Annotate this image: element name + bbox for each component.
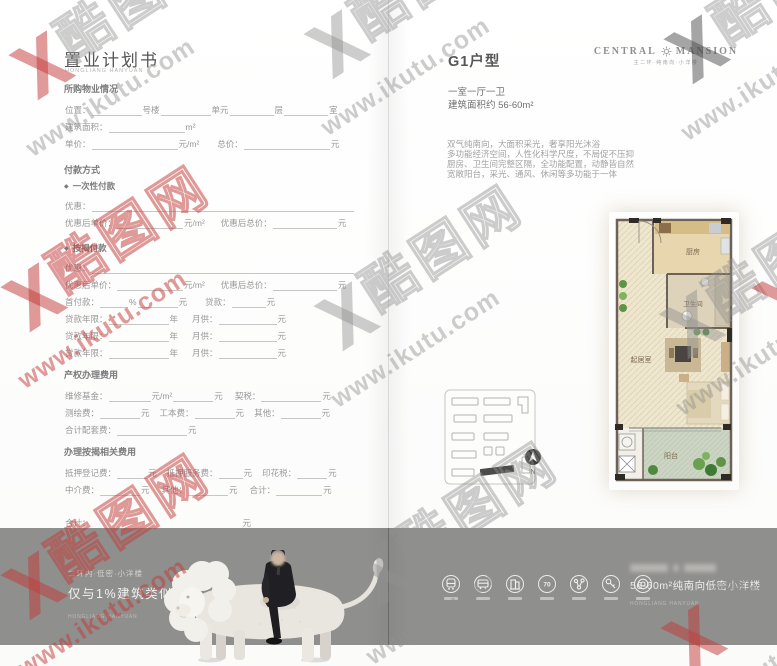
- field-label: 元: [277, 348, 288, 359]
- icon-caption: [444, 597, 458, 600]
- description-line: 宽敞阳台，采光、通风、休闲等多功能于一体: [447, 169, 634, 179]
- form-row: 合计：元: [64, 512, 386, 529]
- field-label: 月供：: [191, 314, 219, 325]
- unit-area: 建筑面积约 56-60m²: [448, 99, 534, 112]
- form-row: 位置：号楼单元层室: [64, 99, 386, 116]
- field-label: m²: [185, 122, 197, 133]
- form-row: 贷款年限：年月供：元: [64, 308, 386, 325]
- form-row: 首付款：%元贷款：元: [64, 291, 386, 308]
- blank-underline: [100, 407, 140, 419]
- field-label: 优惠后单价：: [64, 218, 117, 229]
- watermark-tile: 酷图网www.ikutu.com: [630, 0, 777, 169]
- blurred-face: [271, 552, 285, 566]
- blank-underline: [100, 296, 128, 308]
- blank-underline: [261, 390, 321, 402]
- bath-label: 卫生间: [683, 299, 703, 308]
- field-label: 中介费：: [64, 485, 100, 496]
- unit-type: 一室一厅一卫: [448, 86, 534, 99]
- blank-underline: [230, 104, 274, 116]
- blurred-project-name: [630, 564, 761, 572]
- compass-label: N: [530, 469, 535, 476]
- blank-underline: [109, 121, 185, 133]
- field-label: 元: [243, 468, 254, 479]
- diamond-bullet-icon: ◆: [64, 246, 69, 252]
- blank-underline: [244, 138, 330, 150]
- field-label: 元: [337, 218, 348, 229]
- blank-underline: [232, 296, 266, 308]
- field-label: 工本费：: [159, 408, 195, 419]
- field-label: 元: [140, 408, 151, 419]
- form-row: 中介费：元其他：元合计：元: [64, 479, 386, 496]
- page-title-subtitle: HONGLIANG HANYUAN: [65, 68, 143, 74]
- field-label: 室: [328, 105, 339, 116]
- field-label: 元: [228, 485, 239, 496]
- field-label: 年: [169, 348, 180, 359]
- field-label: 元: [277, 314, 288, 325]
- field-label: 抵押服务费：: [166, 468, 219, 479]
- form-row: 维修基金：元/m²元契税：元: [64, 385, 386, 402]
- description-line: 多功能经济空间，人性化科学尺度，不局促不压抑: [447, 149, 634, 159]
- blank-underline: [117, 279, 183, 291]
- svg-text:70: 70: [543, 582, 551, 589]
- field-label: 优惠：: [64, 201, 92, 212]
- field-label: 元/m²: [178, 139, 201, 150]
- lion-rider-illustration: [150, 550, 405, 664]
- field-label: %: [128, 297, 138, 308]
- form-row: 合计配套费：元: [64, 419, 386, 436]
- watermark-brand: 酷图网: [333, 0, 527, 54]
- blank-underline: [219, 467, 243, 479]
- field-label: 单元: [211, 105, 230, 116]
- footer-icon-key: .f{fill:#f0efec;stroke:none}.ft{fill:#f0…: [600, 575, 622, 600]
- rosette-icon: [661, 46, 672, 57]
- footer-icons: .f{fill:#f0efec;stroke:none}.ft{fill:#f0…: [440, 575, 654, 600]
- blank-underline: [173, 390, 213, 402]
- field-label: 元: [213, 391, 224, 402]
- blank-underline: [92, 262, 354, 274]
- field-label: 优惠后总价：: [220, 280, 273, 291]
- field-label: 印花税：: [261, 468, 297, 479]
- kitchen-label: 厨房: [686, 247, 700, 256]
- form-subheading: ◆一次性付款: [64, 180, 386, 192]
- blank-underline: [273, 279, 337, 291]
- blank-underline: [109, 347, 169, 359]
- center-fold-line: [388, 0, 389, 645]
- footer-icon-metro: .f{fill:#f0efec;stroke:none}.ft{fill:#f0…: [440, 575, 462, 600]
- field-label: 元: [321, 408, 332, 419]
- blank-underline: [92, 200, 354, 212]
- logo-tagline: 主二环·纯南向·小洋楼: [592, 59, 740, 66]
- living-label: 起居室: [631, 355, 652, 364]
- icon-caption: [540, 597, 554, 600]
- icon-caption: [476, 597, 490, 600]
- field-label: 总价：: [216, 139, 244, 150]
- balcony-label: 阳台: [664, 451, 678, 460]
- field-label: 元: [321, 391, 332, 402]
- field-label: 优惠后单价：: [64, 280, 117, 291]
- field-label: 元: [327, 468, 338, 479]
- blank-underline: [219, 330, 277, 342]
- blank-underline: [117, 424, 187, 436]
- form-row: 优惠后单价：元/m²优惠后总价：元: [64, 212, 386, 229]
- watermark-x-icon: [303, 9, 371, 79]
- field-label: 元: [147, 468, 158, 479]
- field-label: 单价：: [64, 139, 92, 150]
- north-compass-icon: N: [524, 448, 542, 476]
- blank-underline: [117, 217, 183, 229]
- watermark-url: www.ikutu.com: [676, 16, 777, 147]
- blank-underline: [281, 407, 321, 419]
- field-label: 元: [277, 331, 288, 342]
- field-label: 贷款年限：: [64, 331, 109, 342]
- field-label: 元: [322, 485, 333, 496]
- watermark-x-icon: [0, 262, 68, 332]
- form-subheading: ◆按揭付款: [64, 242, 386, 254]
- field-label: 月供：: [191, 331, 219, 342]
- blank-underline: [297, 467, 327, 479]
- field-label: 年: [169, 314, 180, 325]
- description-line: 厨房、卫生间完整区隔，全功能配置，动静皆自然: [447, 159, 634, 169]
- blank-underline: [117, 467, 147, 479]
- logo-word-right: MANSION: [676, 46, 738, 57]
- description-line: 双气纯南向，大面积采光，奢享阳光沐浴: [447, 139, 634, 149]
- footer-icon-road-network: .f{fill:#f0efec;stroke:none}.ft{fill:#f0…: [568, 575, 590, 600]
- form-row: 优惠后单价：元/m²优惠后总价：元: [64, 274, 386, 291]
- footer-right-area: 56-60m²纯南向低密小洋楼: [630, 578, 761, 593]
- blank-underline: [161, 104, 211, 116]
- field-label: 贷款年限：: [64, 314, 109, 325]
- icon-caption: [604, 597, 618, 600]
- purchase-form-rows: 所购物业情况位置：号楼单元层室建筑面积：m²单价：元/m²总价：元付款方式◆一次…: [64, 76, 386, 574]
- footer-icon-building: .f{fill:#f0efec;stroke:none}.ft{fill:#f0…: [504, 575, 526, 600]
- field-label: 年: [169, 331, 180, 342]
- field-label: 层: [274, 105, 285, 116]
- field-label: 位置：: [64, 105, 92, 116]
- form-row: 优惠：: [64, 195, 386, 212]
- form-row: 测绘费：元工本费：元其他：元: [64, 402, 386, 419]
- field-label: 优惠后总价：: [220, 218, 273, 229]
- form-row: 贷款年限：年月供：元: [64, 325, 386, 342]
- form-section-heading: 所购物业情况: [64, 82, 386, 95]
- field-label: 首付款：: [64, 297, 100, 308]
- form-section-heading: 办理按揭相关费用: [64, 445, 386, 458]
- field-label: 元: [266, 297, 277, 308]
- field-label: 号楼: [142, 105, 161, 116]
- footer-right-brand: HONGLIANG HANYUAN: [630, 601, 761, 607]
- blank-underline: [188, 484, 228, 496]
- blank-underline: [219, 347, 277, 359]
- field-label: 其他：: [253, 408, 281, 419]
- field-label: 元/m²: [151, 391, 174, 402]
- field-label: 抵押登记费：: [64, 468, 117, 479]
- field-label: 元: [330, 139, 341, 150]
- blank-underline: [109, 313, 169, 325]
- form-row: 单价：元/m²总价：元: [64, 133, 386, 150]
- field-label: 元: [337, 280, 348, 291]
- field-label: 元/m²: [183, 280, 206, 291]
- field-label: 合计：: [249, 485, 277, 496]
- unit-title: G1户型: [448, 50, 500, 71]
- blank-underline: [92, 138, 178, 150]
- field-label: 元: [235, 408, 246, 419]
- form-row: 建筑面积：m²: [64, 116, 386, 133]
- blank-underline: [273, 217, 337, 229]
- field-label: 合计配套费：: [64, 425, 117, 436]
- field-label: 优惠：: [64, 263, 92, 274]
- field-label: 元: [178, 297, 189, 308]
- blank-underline: [284, 104, 328, 116]
- form-section-heading: 产权办理费用: [64, 368, 386, 381]
- field-label: 其他：: [161, 485, 189, 496]
- form-row: 抵押登记费：元抵押服务费：元印花税：元: [64, 462, 386, 479]
- blank-underline: [92, 104, 142, 116]
- footer-right-block: 56-60m²纯南向低密小洋楼 HONGLIANG HANYUAN: [630, 564, 761, 607]
- form-section-heading: 付款方式: [64, 163, 386, 176]
- icon-caption: [508, 597, 522, 600]
- footer-icon-year-70: .f{fill:#f0efec;stroke:none}.ft{fill:#f0…: [536, 575, 558, 600]
- blank-underline: [219, 313, 277, 325]
- form-row: 贷款年限：年月供：元: [64, 342, 386, 359]
- field-label: 月供：: [191, 348, 219, 359]
- footer-icon-bus: .f{fill:#f0efec;stroke:none}.ft{fill:#f0…: [472, 575, 494, 600]
- form-row: 优惠：: [64, 257, 386, 274]
- floor-plan: 厨房 卫生间 起居室 阳台: [609, 212, 739, 490]
- icon-caption: [572, 597, 586, 600]
- field-label: 元: [187, 425, 198, 436]
- field-label: 测绘费：: [64, 408, 100, 419]
- brochure-spread: 置业计划书 HONGLIANG HANYUAN 所购物业情况位置：号楼单元层室建…: [0, 0, 777, 666]
- unit-summary: 一室一厅一卫 建筑面积约 56-60m²: [448, 86, 534, 112]
- field-label: 贷款年限：: [64, 348, 109, 359]
- brand-logo: CENTRAL MANSION 主二环·纯南向·小洋楼: [592, 46, 740, 66]
- field-label: 契税：: [234, 391, 262, 402]
- blank-underline: [109, 390, 151, 402]
- blank-underline: [138, 296, 178, 308]
- field-label: 元/m²: [183, 218, 206, 229]
- diamond-bullet-icon: ◆: [64, 184, 69, 190]
- blank-underline: [100, 484, 140, 496]
- field-label: 建筑面积：: [64, 122, 109, 133]
- blank-underline: [276, 484, 322, 496]
- field-label: 元: [140, 485, 151, 496]
- logo-word-left: CENTRAL: [594, 46, 657, 57]
- blank-underline: [195, 407, 235, 419]
- field-label: 维修基金：: [64, 391, 109, 402]
- blank-underline: [109, 330, 169, 342]
- watermark-x-icon: [751, 263, 777, 333]
- unit-description: 双气纯南向，大面积采光，奢享阳光沐浴多功能经济空间，人性化科学尺度，不局促不压抑…: [447, 139, 634, 179]
- field-label: 贷款：: [204, 297, 232, 308]
